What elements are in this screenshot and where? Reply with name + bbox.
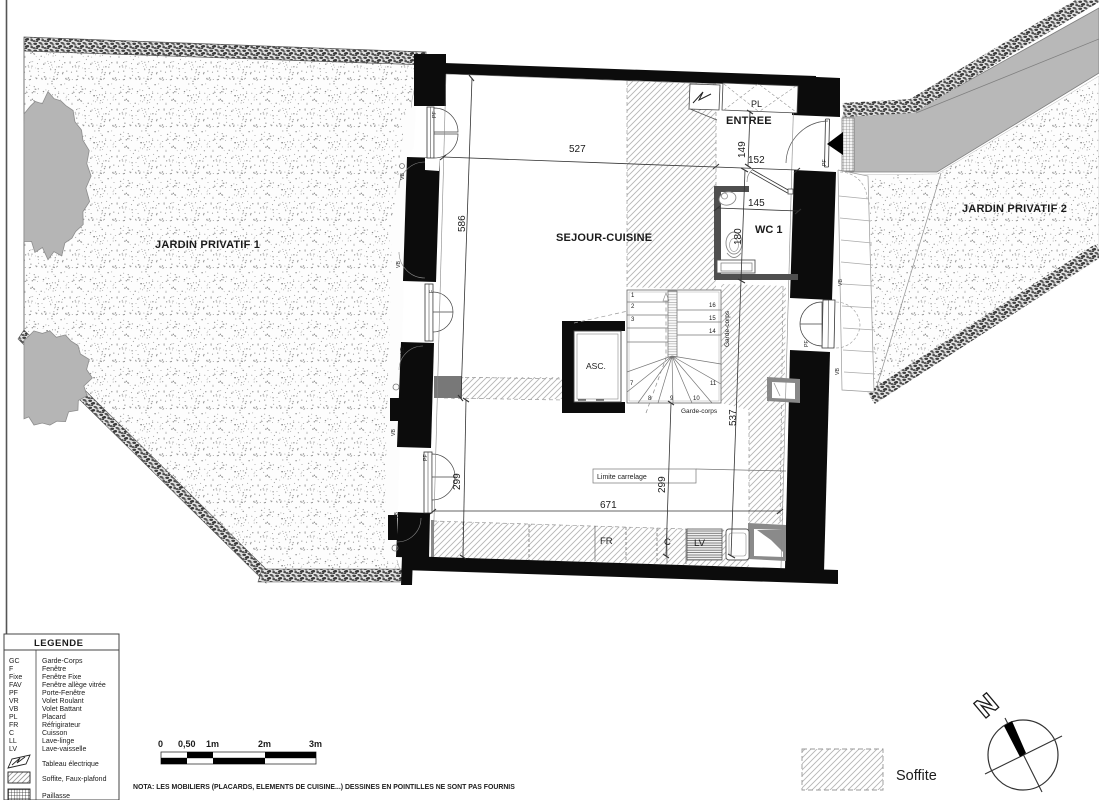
svg-text:299: 299	[452, 473, 463, 490]
svg-text:Porte-Fenêtre: Porte-Fenêtre	[42, 690, 85, 697]
svg-text:537: 537	[728, 409, 739, 426]
svg-text:LEGENDE: LEGENDE	[34, 638, 83, 649]
svg-text:0: 0	[158, 739, 163, 749]
svg-text:ENTREE: ENTREE	[726, 115, 772, 127]
svg-text:2m: 2m	[258, 739, 271, 749]
svg-text:SEJOUR-CUISINE: SEJOUR-CUISINE	[556, 232, 652, 244]
svg-text:Garde-corps: Garde-corps	[724, 310, 731, 347]
svg-text:Volet Battant: Volet Battant	[42, 706, 82, 713]
svg-text:C: C	[664, 537, 671, 548]
svg-text:Garde-corps: Garde-corps	[681, 408, 718, 415]
svg-text:Soffite, Faux-plafond: Soffite, Faux-plafond	[42, 776, 107, 783]
svg-text:180: 180	[733, 228, 744, 245]
svg-text:LL: LL	[9, 738, 17, 745]
svg-text:Paillasse: Paillasse	[42, 793, 70, 800]
svg-text:Fixe: Fixe	[9, 674, 22, 681]
svg-text:Fenêtre: Fenêtre	[42, 666, 66, 673]
svg-text:Placard: Placard	[42, 714, 66, 721]
svg-text:671: 671	[600, 500, 617, 511]
svg-text:Lave-vaisselle: Lave-vaisselle	[42, 746, 86, 753]
svg-text:Tableau électrique: Tableau électrique	[42, 761, 99, 768]
svg-text:VB: VB	[394, 512, 400, 519]
svg-text:15: 15	[709, 316, 716, 322]
svg-text:10: 10	[693, 396, 700, 402]
svg-text:Volet Roulant: Volet Roulant	[42, 698, 84, 705]
svg-text:JARDIN PRIVATIF 2: JARDIN PRIVATIF 2	[962, 203, 1067, 215]
svg-text:WC 1: WC 1	[755, 224, 783, 236]
svg-text:152: 152	[748, 155, 765, 166]
svg-text:LV: LV	[694, 538, 706, 549]
svg-text:VB: VB	[838, 279, 844, 286]
svg-text:Réfrigirateur: Réfrigirateur	[42, 722, 81, 729]
svg-text:145: 145	[748, 198, 765, 209]
svg-text:JARDIN PRIVATIF 1: JARDIN PRIVATIF 1	[155, 239, 260, 251]
svg-text:Fenêtre Fixe: Fenêtre Fixe	[42, 674, 81, 681]
svg-text:PF: PF	[822, 159, 828, 166]
svg-text:VB: VB	[835, 368, 841, 375]
svg-text:Lave-linge: Lave-linge	[42, 738, 74, 745]
svg-text:VB: VB	[396, 261, 402, 268]
svg-text:VR: VR	[9, 698, 19, 705]
svg-text:Limite carrelage: Limite carrelage	[597, 474, 647, 481]
svg-text:PF: PF	[9, 690, 18, 697]
svg-text:GC: GC	[9, 658, 20, 665]
svg-text:0,50: 0,50	[178, 739, 196, 749]
svg-text:299: 299	[657, 476, 668, 493]
svg-text:FR: FR	[9, 722, 18, 729]
svg-text:149: 149	[737, 141, 748, 158]
svg-text:Garde-Corps: Garde-Corps	[42, 658, 83, 665]
svg-text:VB: VB	[391, 429, 397, 436]
svg-text:C: C	[9, 730, 14, 737]
svg-text:PF: PF	[432, 111, 438, 118]
svg-text:11: 11	[710, 381, 717, 387]
svg-text:PL: PL	[9, 714, 18, 721]
svg-text:VB: VB	[400, 347, 406, 354]
svg-text:FR: FR	[600, 536, 613, 547]
svg-text:F: F	[9, 666, 13, 673]
svg-text:PF: PF	[423, 454, 429, 461]
svg-text:Cuisson: Cuisson	[42, 730, 67, 737]
svg-text:14: 14	[709, 329, 716, 335]
svg-text:16: 16	[709, 303, 716, 309]
svg-text:3m: 3m	[309, 739, 322, 749]
svg-text:NOTA: LES MOBILIERS (PLACARDS,: NOTA: LES MOBILIERS (PLACARDS, ELEMENTS …	[133, 784, 515, 791]
svg-text:PL: PL	[751, 99, 762, 109]
svg-text:VB: VB	[9, 706, 19, 713]
svg-text:FAV: FAV	[9, 682, 22, 689]
svg-text:Fenêtre allège vitrée: Fenêtre allège vitrée	[42, 682, 106, 689]
svg-text:1m: 1m	[206, 739, 219, 749]
svg-text:586: 586	[457, 215, 468, 232]
svg-text:527: 527	[569, 144, 586, 155]
svg-text:LV: LV	[9, 746, 17, 753]
svg-text:PF: PF	[804, 340, 810, 347]
svg-text:VB: VB	[400, 173, 406, 180]
svg-text:ASC.: ASC.	[586, 361, 606, 371]
svg-text:Soffite: Soffite	[896, 768, 937, 784]
svg-text:F: F	[429, 290, 435, 293]
